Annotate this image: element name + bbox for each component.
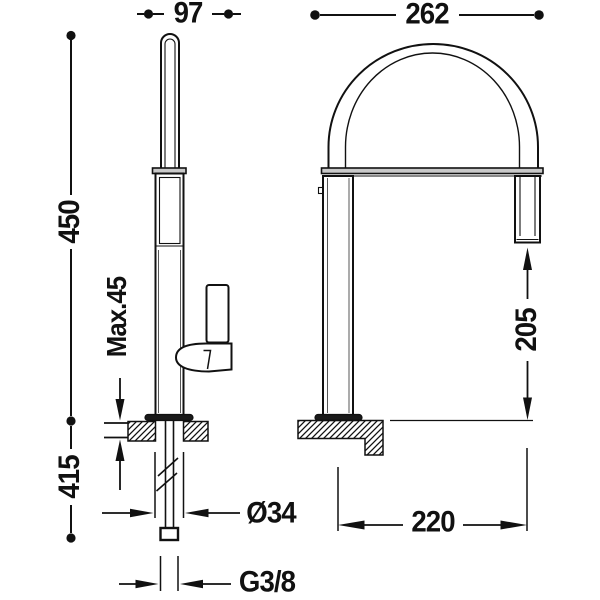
dim-g38-lines <box>119 556 231 591</box>
side-spout-tube-inner <box>165 39 175 169</box>
technical-drawing-page: 97 262 450 Max.45 415 Ø34 G3/8 205 220 <box>0 0 600 600</box>
dim-dia34-lines <box>102 452 240 518</box>
side-counter-left <box>128 422 156 442</box>
dim-max45-lines <box>104 378 128 490</box>
side-base-plate <box>145 415 193 421</box>
front-view <box>298 44 543 455</box>
dim-label-outlet-clearance: 205 <box>512 308 542 351</box>
dim-label-thread-size: G3/8 <box>239 567 295 597</box>
dim-label-hole-diameter: Ø34 <box>246 498 295 528</box>
front-base-plate <box>315 415 362 421</box>
dim-label-spout-reach: 220 <box>411 507 454 537</box>
front-crossbar <box>322 168 544 174</box>
front-arch-outer <box>329 44 539 168</box>
side-counter-right <box>184 422 209 442</box>
dim-label-max-counter-thickness: Max.45 <box>103 277 131 357</box>
dim-label-spout-depth: 97 <box>174 0 203 28</box>
side-handle-lever <box>207 285 229 343</box>
dim-label-under-counter-length: 415 <box>55 455 85 498</box>
dimension-linework <box>66 9 543 591</box>
drawing-canvas <box>0 0 600 600</box>
front-arch-inner <box>346 53 520 168</box>
dim-label-height-above-counter: 450 <box>55 200 85 243</box>
side-connector <box>161 528 179 540</box>
front-outlet <box>515 176 540 243</box>
side-shank <box>166 421 174 529</box>
dim-label-arch-width: 262 <box>405 0 448 29</box>
side-spout-tube <box>161 34 179 169</box>
front-counter <box>298 421 383 456</box>
pipe-break-slashes <box>157 458 179 491</box>
side-view <box>128 34 232 540</box>
side-handle-joint <box>176 344 232 372</box>
